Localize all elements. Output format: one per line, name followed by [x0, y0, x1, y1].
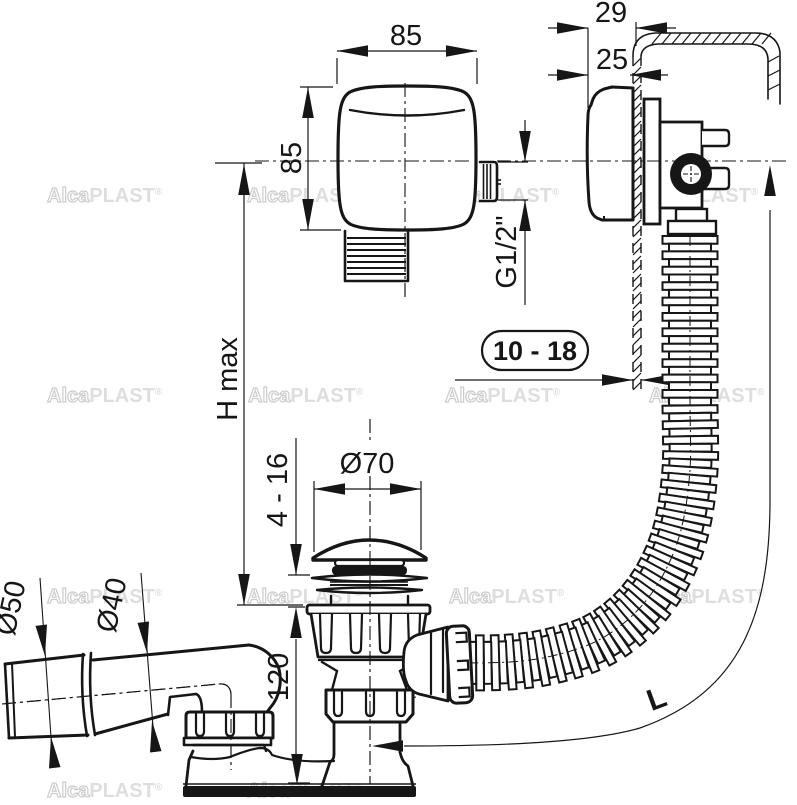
- svg-text:85: 85: [276, 142, 308, 174]
- svg-text:G1/2": G1/2": [491, 215, 523, 288]
- svg-text:H max: H max: [212, 337, 244, 421]
- svg-text:AlcaPLAST®: AlcaPLAST®: [47, 780, 163, 800]
- svg-text:10 - 18: 10 - 18: [493, 336, 577, 366]
- svg-text:85: 85: [390, 20, 422, 52]
- svg-text:AlcaPLAST®: AlcaPLAST®: [47, 385, 163, 407]
- svg-text:29: 29: [595, 0, 627, 29]
- svg-text:Ø70: Ø70: [340, 448, 395, 480]
- svg-text:25: 25: [596, 44, 628, 76]
- svg-text:4 - 16: 4 - 16: [262, 453, 294, 527]
- svg-text:AlcaPLAST®: AlcaPLAST®: [47, 185, 163, 207]
- svg-text:AlcaPLAST®: AlcaPLAST®: [248, 385, 364, 407]
- svg-text:AlcaPLAST®: AlcaPLAST®: [449, 586, 565, 608]
- svg-text:AlcaPLAST®: AlcaPLAST®: [445, 385, 561, 407]
